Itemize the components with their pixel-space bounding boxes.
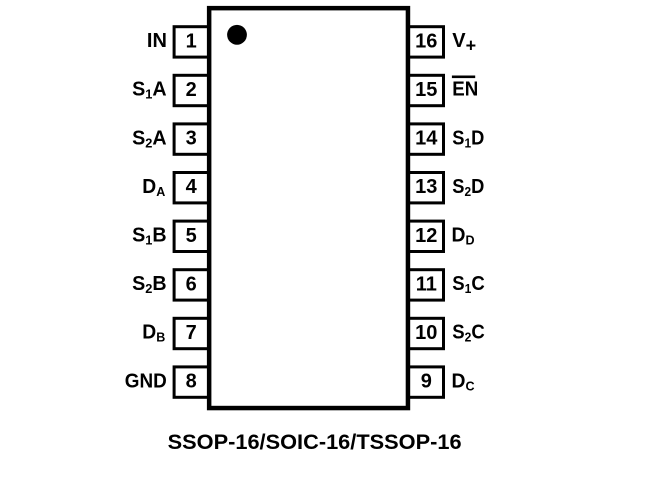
svg-text:4: 4 — [186, 176, 198, 198]
svg-text:IN: IN — [147, 30, 167, 52]
svg-text:SSOP-16/SOIC-16/TSSOP-16: SSOP-16/SOIC-16/TSSOP-16 — [168, 431, 462, 454]
svg-text:3: 3 — [186, 128, 197, 150]
svg-text:10: 10 — [415, 322, 437, 344]
svg-text:5: 5 — [186, 225, 197, 247]
svg-text:EN: EN — [452, 79, 478, 101]
svg-text:11: 11 — [416, 273, 437, 295]
svg-text:GND: GND — [125, 370, 167, 392]
svg-text:14: 14 — [415, 128, 438, 150]
svg-text:9: 9 — [421, 371, 432, 393]
svg-text:8: 8 — [186, 371, 197, 393]
svg-text:15: 15 — [415, 79, 437, 101]
svg-text:1: 1 — [186, 30, 197, 52]
svg-text:12: 12 — [415, 225, 437, 247]
svg-text:16: 16 — [415, 30, 437, 52]
svg-text:13: 13 — [415, 176, 437, 198]
svg-text:6: 6 — [186, 273, 197, 295]
svg-text:7: 7 — [186, 322, 197, 344]
svg-text:2: 2 — [186, 79, 197, 101]
